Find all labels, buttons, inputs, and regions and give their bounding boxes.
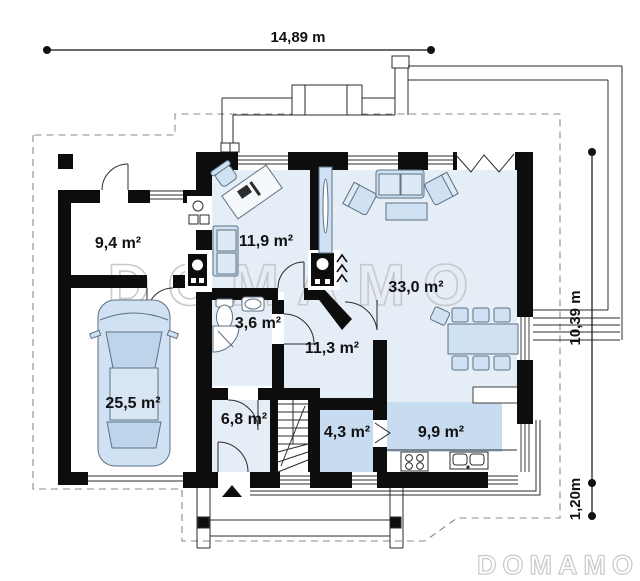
terrace-double-door (455, 154, 514, 172)
toilet-icon (216, 299, 233, 329)
kitchen-counter (387, 450, 517, 471)
tech-room-exterior-door (102, 164, 128, 190)
dining-table (448, 324, 518, 354)
dining-chair (494, 308, 510, 322)
floor-plan-drawing: DOMAMO (0, 0, 640, 581)
corridor-bottom-window (280, 473, 310, 487)
dining-chair (473, 308, 489, 322)
dimension-top: 14,89 m (43, 29, 435, 54)
kitchen-side-window (518, 424, 532, 472)
watermark-corner: DOMAMO (477, 550, 639, 580)
label-corridor: 6,8 m² (221, 411, 267, 428)
living-window-1 (348, 153, 398, 169)
stairs (278, 400, 308, 472)
kitchen-sink-icon (450, 452, 488, 469)
coffee-table (386, 203, 427, 220)
label-bathroom: 3,6 m² (235, 315, 281, 332)
boiler-niche (187, 196, 212, 230)
label-living-room: 33,0 m² (388, 279, 443, 296)
dining-chair (452, 356, 468, 370)
dimension-right: 10,39 m (567, 148, 596, 487)
living-sofa (376, 170, 424, 198)
label-office: 11,9 m² (239, 233, 293, 250)
entrance-arrow (222, 485, 242, 497)
living-wardrobe (319, 167, 332, 253)
label-garage: 25,5 m² (105, 395, 160, 412)
stove-icon (401, 452, 428, 471)
living-window-2 (428, 153, 453, 169)
furnace-unit (185, 250, 212, 292)
dining-chair (452, 308, 468, 322)
tech-room-steps (150, 188, 183, 203)
sink-icon (242, 297, 264, 311)
stairs-bottom-window (352, 473, 377, 487)
garage-door-line (88, 476, 183, 481)
pantry-floor (320, 410, 373, 472)
label-tech-room: 9,4 m² (95, 235, 141, 252)
dining-side-door-window (518, 317, 532, 360)
dining-chair (473, 356, 489, 370)
dimension-right-small: 1,20m (567, 478, 596, 521)
dim-top-label: 14,89 m (270, 29, 325, 46)
floor-plan-page: DOMAMO (0, 0, 640, 581)
label-hall: 11,3 m² (305, 340, 359, 357)
dining-chair (494, 356, 510, 370)
roof-overhang-outline (221, 56, 409, 152)
dim-right-small-label: 1,20m (567, 478, 584, 521)
label-kitchen: 9,9 m² (418, 424, 464, 441)
dim-right-label: 10,39 m (567, 290, 584, 345)
office-sofa (213, 226, 238, 276)
kitchen-bottom-window (488, 473, 518, 487)
label-pantry: 4,3 m² (324, 424, 370, 441)
car (90, 300, 179, 466)
